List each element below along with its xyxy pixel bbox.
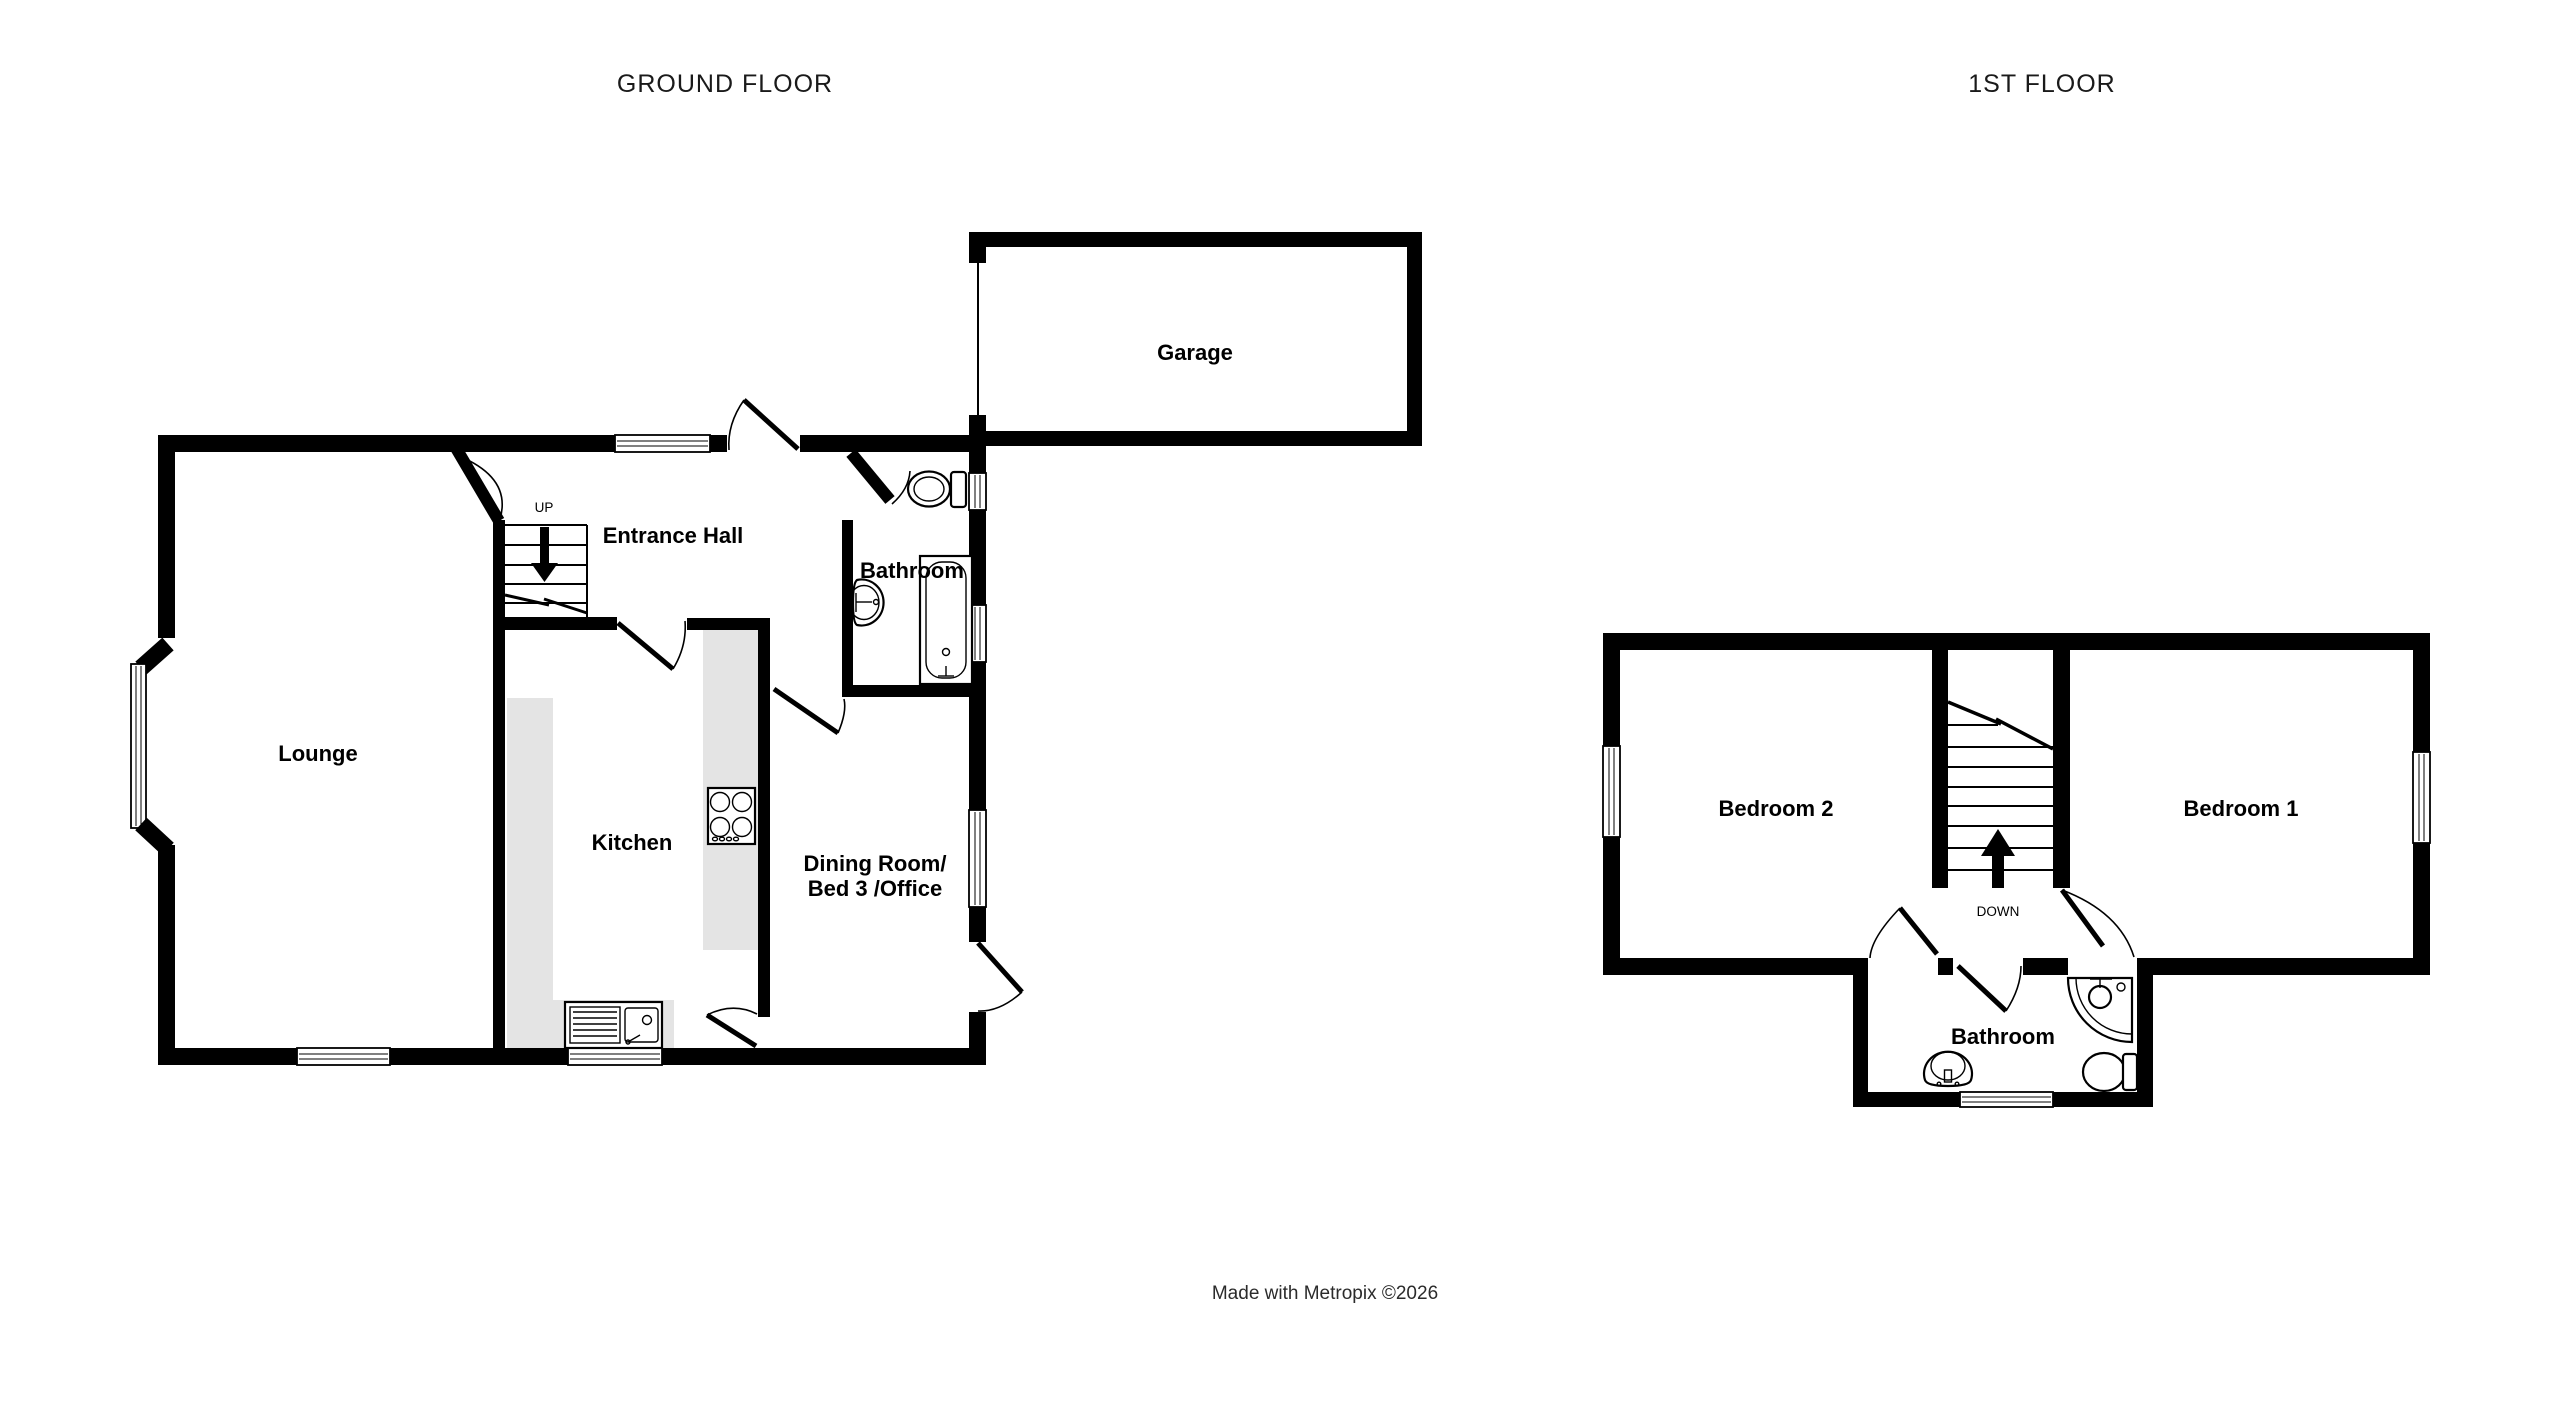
wall <box>710 435 727 452</box>
ground-floor-plan: UP <box>131 232 1422 1065</box>
wall <box>2137 958 2430 975</box>
entrance-hall-window <box>615 435 710 452</box>
kitchen-label: Kitchen <box>592 830 673 855</box>
wall <box>662 1048 986 1065</box>
dining-label-line1: Dining Room/ <box>804 851 947 876</box>
dining-label-line2: Bed 3 /Office <box>808 876 942 901</box>
wall-under-stairs <box>493 617 617 630</box>
dining-rear-door <box>978 943 1022 1011</box>
entrance-hall-label: Entrance Hall <box>603 523 744 548</box>
garage-label: Garage <box>1157 340 1233 365</box>
wall <box>2023 958 2068 975</box>
stairs-arrow-stem <box>540 527 549 564</box>
toilet-icon <box>908 472 966 508</box>
floorplan-canvas: GROUND FLOOR 1ST FLOOR <box>0 0 2560 1407</box>
bedroom2-door <box>1870 908 1937 958</box>
stairs-arrow-head <box>531 563 558 582</box>
dining-window <box>969 810 986 907</box>
wall <box>969 1012 986 1065</box>
dining-door <box>774 689 845 733</box>
front-door <box>459 400 798 519</box>
wall <box>1938 958 1953 975</box>
stairs-arrow-head <box>1981 829 2015 856</box>
hob-icon <box>708 788 755 844</box>
wall <box>1603 837 1620 975</box>
wall <box>158 845 175 1065</box>
wc-window <box>969 473 986 510</box>
wall <box>1603 633 2430 650</box>
wall-angled-lounge <box>456 448 499 521</box>
bedroom1-window <box>2413 752 2430 843</box>
bedroom2-window <box>1603 746 1620 837</box>
first-floor-title: 1ST FLOOR <box>1968 70 2115 98</box>
lounge-label: Lounge <box>278 741 357 766</box>
wall <box>800 435 986 452</box>
stairs-down-label: DOWN <box>1977 904 2020 919</box>
ground-floor-title: GROUND FLOOR <box>617 70 833 98</box>
wall <box>2413 843 2430 975</box>
wall <box>1853 1092 1960 1107</box>
wall-stairwell-right <box>2053 650 2070 888</box>
first-floor-plan: DOWN <box>1603 633 2430 1107</box>
wall-kitchen-top <box>687 618 758 630</box>
wall-lounge-kitchen <box>493 520 505 1048</box>
wall <box>158 1048 297 1065</box>
stairs-arrow-stem <box>1992 856 2004 888</box>
wall <box>158 435 175 638</box>
wall <box>2053 1092 2153 1107</box>
ff-sink-icon <box>1924 1052 1972 1086</box>
metropix-credit: Made with Metropix ©2026 <box>1212 1283 1438 1304</box>
wall-angled-hall <box>851 453 890 500</box>
stairs-up <box>505 525 587 617</box>
lounge-bottom-window <box>297 1048 390 1065</box>
wall <box>2413 633 2430 752</box>
wall <box>1603 958 1868 975</box>
wall-kitchen-dining <box>758 618 770 1017</box>
sink-icon <box>849 580 884 626</box>
ground-bathroom-label: Bathroom <box>860 558 964 583</box>
shower-icon <box>2068 978 2132 1042</box>
wall-bathroom-left <box>842 520 853 685</box>
kitchen-sink-icon <box>565 1002 662 1048</box>
stairs-up-label: UP <box>535 500 554 515</box>
wall-stairwell-left <box>1932 650 1948 888</box>
bedroom2-label: Bedroom 2 <box>1719 796 1834 821</box>
wall <box>1603 633 1620 746</box>
ff-bathroom-window <box>1960 1092 2053 1107</box>
bedroom1-door <box>2062 890 2134 957</box>
bedroom1-label: Bedroom 1 <box>2184 796 2299 821</box>
lounge-bay-window <box>131 664 146 828</box>
wall <box>158 435 615 452</box>
ff-bathroom-label: Bathroom <box>1951 1024 2055 1049</box>
wall-ff-bathroom-left <box>1853 975 1868 1107</box>
stairs-down <box>1948 702 2053 888</box>
wall <box>969 907 986 942</box>
kitchen-door <box>618 621 685 669</box>
kitchen-bottom-window <box>568 1048 662 1065</box>
wall-ff-bathroom-right <box>2137 975 2153 1107</box>
kitchen-dining-door <box>707 1008 757 1046</box>
first-bathroom-door <box>1958 966 2021 1011</box>
garage-walls <box>969 232 1422 446</box>
wall <box>390 1048 568 1065</box>
ff-toilet-icon <box>2083 1053 2137 1091</box>
wall-bathroom-bottom <box>842 685 969 697</box>
